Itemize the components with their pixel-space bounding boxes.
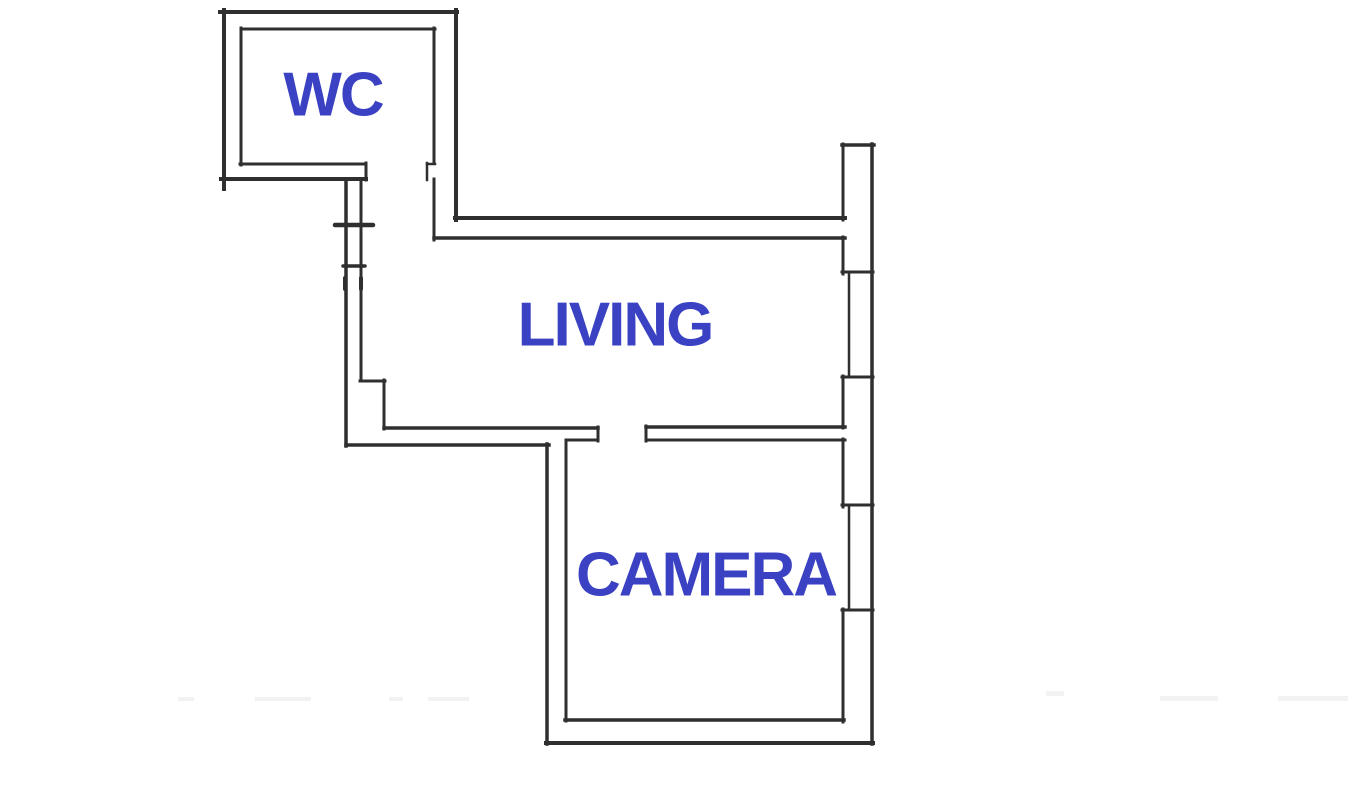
room-label-living: LIVING (518, 290, 713, 361)
floorplan-page: WC LIVING CAMERA (0, 0, 1353, 798)
scan-artifact (1278, 696, 1348, 701)
floorplan-svg (0, 0, 1353, 798)
room-label-camera: CAMERA (576, 540, 836, 611)
scan-artifact (1160, 696, 1218, 701)
scan-artifact (255, 697, 311, 701)
room-label-wc: WC (283, 60, 382, 131)
scan-artifact (1046, 691, 1064, 696)
scan-artifact (389, 697, 403, 701)
scan-artifact (428, 697, 469, 701)
scan-artifact (178, 697, 194, 701)
